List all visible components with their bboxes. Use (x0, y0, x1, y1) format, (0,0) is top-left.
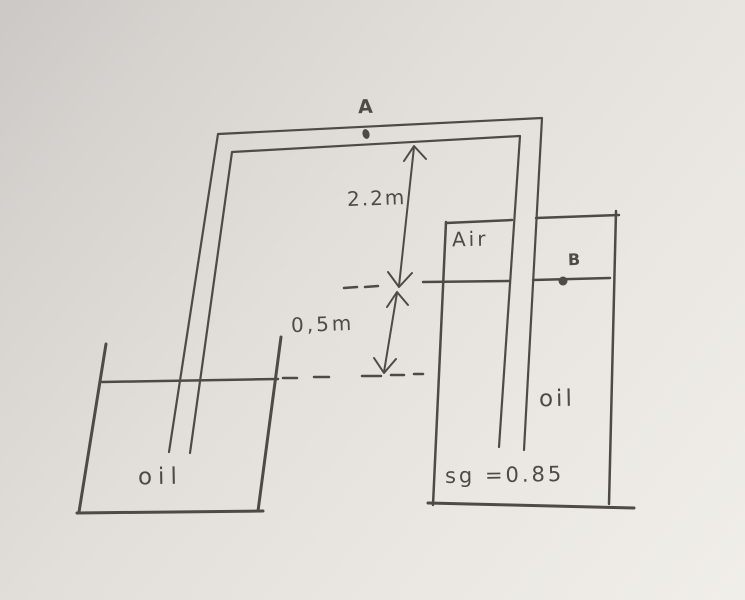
left-tank-oil-label: oil (138, 466, 183, 490)
u-tube-outer-line (169, 118, 542, 452)
air-region-label: Air (452, 229, 489, 250)
right-tank-right-wall (609, 211, 616, 504)
right-tank-oil-label: oil (539, 388, 575, 412)
dimension-2-2m-label: 2.2m (347, 187, 407, 209)
point-a-label: A (358, 98, 373, 118)
right-tank-rim (446, 215, 619, 223)
right-tank-oil-surface (423, 278, 610, 282)
right-tank-bottom (428, 503, 634, 508)
right-tank-left-wall (433, 222, 446, 505)
left-tank-oil-surface (102, 379, 278, 382)
diagram-photo: A 2.2m Air B 0,5m oil oil sg =0.85 (0, 0, 745, 600)
upper-datum-dashed-line (344, 286, 378, 288)
lower-datum-dashed-line (283, 374, 423, 378)
point-b-label: B (568, 252, 581, 268)
point-a-marker (361, 128, 370, 139)
point-b-marker (559, 277, 568, 286)
diagram-linework (0, 0, 745, 600)
dimension-0-5m-label: 0,5m (291, 313, 355, 335)
u-tube-inner-line (190, 136, 520, 453)
specific-gravity-label: sg =0.85 (445, 464, 565, 487)
dim-2-2m-line (399, 147, 414, 286)
